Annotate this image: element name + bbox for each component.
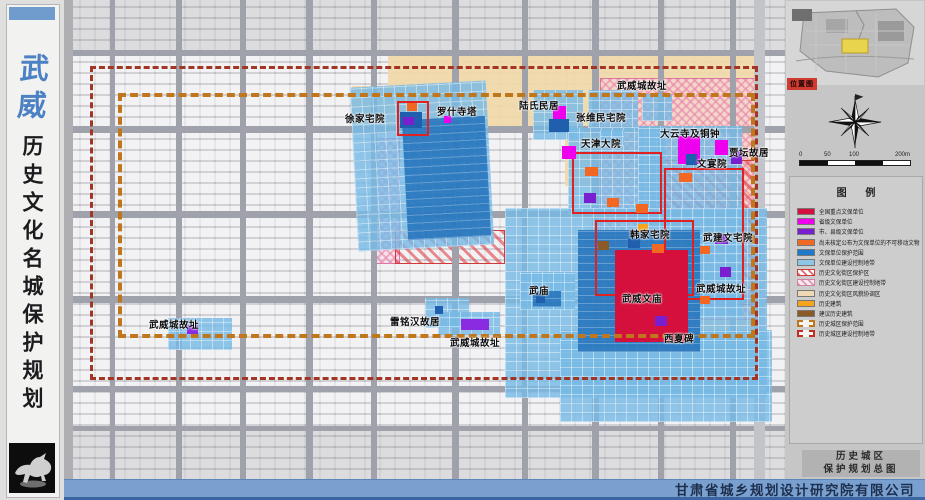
map-site-label: 张维民宅院 — [576, 110, 626, 124]
legend-item: 历史城区保护范围 — [790, 320, 922, 327]
footer-bar: 甘肃省城乡规划设计研究院有限公司 — [64, 479, 925, 500]
legend-item: 历史文化街区风貌协调区 — [790, 290, 922, 297]
bronze-horse-logo — [9, 443, 55, 493]
protection-plan-map: 徐家宅院 罗什寺塔 陆氏民居 武威城故址 张维民宅院 天津大院 大云寺及铜钟 贾… — [66, 0, 785, 479]
legend-swatch — [797, 249, 815, 256]
scale-tick: 200m — [895, 152, 910, 158]
right-panel: 位置图 0 50 100 200m 图 例 全国重 — [785, 0, 925, 479]
map-site-label: 武威城故址 — [617, 78, 667, 92]
map-site-label: 文宴院 — [697, 156, 727, 170]
map-site-label: 韩家宅院 — [630, 227, 670, 241]
drawing-title-line1: 历史城区 — [802, 450, 920, 463]
north-arrow-icon — [827, 92, 883, 152]
outer-city-top — [66, 0, 785, 50]
legend-item: 尚未核定公布为文保单位的不可移动文物 — [790, 239, 922, 246]
map-site-label: 徐家宅院 — [345, 111, 385, 125]
map-site-label: 武威城故址 — [149, 317, 199, 331]
scale-tick: 50 — [824, 152, 831, 158]
company-name: 甘肃省城乡规划设计研究院有限公司 — [675, 479, 915, 499]
map-site-label: 武庙 — [529, 283, 549, 297]
compass-rose — [827, 92, 883, 157]
map-site-label: 武建文宅院 — [703, 230, 753, 244]
legend-swatch — [797, 218, 815, 225]
legend-item: 文保单位建设控制地带 — [790, 259, 922, 266]
legend-swatch — [797, 330, 815, 337]
sidebar-top-bar — [9, 7, 55, 20]
legend-swatch — [797, 320, 815, 327]
map-site-label: 武威城故址 — [450, 335, 500, 349]
scale-bar-segments — [799, 160, 911, 166]
map-site-label: 武威文庙 — [622, 291, 662, 305]
legend: 图 例 全国重点文保单位 省级文保单位 市、县级文保单位 尚未核定公布为文保单位… — [789, 176, 923, 444]
legend-item: 历史文化街区保护区 — [790, 269, 922, 276]
location-map-tag: 位置图 — [787, 78, 817, 90]
map-site-label: 陆氏民居 — [519, 98, 559, 112]
map-site-label: 西夏碑 — [664, 331, 694, 345]
legend-title: 图 例 — [798, 184, 922, 199]
map-site-label: 武威城故址 — [696, 281, 746, 295]
legend-swatch — [797, 239, 815, 246]
legend-item: 全国重点文保单位 — [790, 208, 922, 215]
map-site-label: 天津大院 — [581, 136, 621, 150]
scale-tick: 0 — [799, 152, 802, 158]
scale-tick: 100 — [849, 152, 859, 158]
sidebar-panel: 武威 历史文化名城保护规划 — [6, 4, 60, 498]
legend-item: 历史城区建设控制地带 — [790, 330, 922, 337]
plan-title-vertical: 历史文化名城保护规划 — [21, 135, 42, 415]
legend-swatch — [797, 208, 815, 215]
legend-swatch — [797, 300, 815, 307]
sidebar-map-divider — [64, 0, 73, 479]
city-name: 武威 — [12, 53, 46, 127]
map-site-label: 大云寺及铜钟 — [660, 126, 720, 140]
sidebar: 武威 历史文化名城保护规划 — [0, 0, 66, 500]
horse-icon — [9, 443, 55, 493]
map-site-label: 罗什寺塔 — [437, 104, 477, 118]
outer-city-bottom — [66, 430, 785, 479]
legend-swatch — [797, 228, 815, 235]
scale-bar: 0 50 100 200m — [799, 152, 911, 168]
legend-swatch — [797, 279, 815, 286]
legend-item: 市、县级文保单位 — [790, 228, 922, 235]
legend-item: 文保单位保护范围 — [790, 249, 922, 256]
legend-item: 建议历史建筑 — [790, 310, 922, 317]
legend-swatch — [797, 269, 815, 276]
location-map: 位置图 — [786, 1, 924, 85]
legend-item: 历史文化街区建设控制地带 — [790, 279, 922, 286]
drawing-title-block: 历史城区 保护规划总图 — [802, 450, 920, 477]
map-site-label: 贾坛故居 — [729, 145, 769, 159]
location-highlight — [842, 39, 868, 53]
drawing-title-line2: 保护规划总图 — [802, 463, 920, 476]
legend-swatch — [797, 310, 815, 317]
legend-item: 省级文保单位 — [790, 218, 922, 225]
map-site-label: 雷铭汉故居 — [390, 314, 440, 328]
location-map-image — [786, 1, 924, 85]
road — [66, 426, 785, 431]
legend-item: 历史建筑 — [790, 300, 922, 307]
legend-swatch — [797, 259, 815, 266]
road — [66, 50, 785, 56]
legend-swatch — [797, 290, 815, 297]
